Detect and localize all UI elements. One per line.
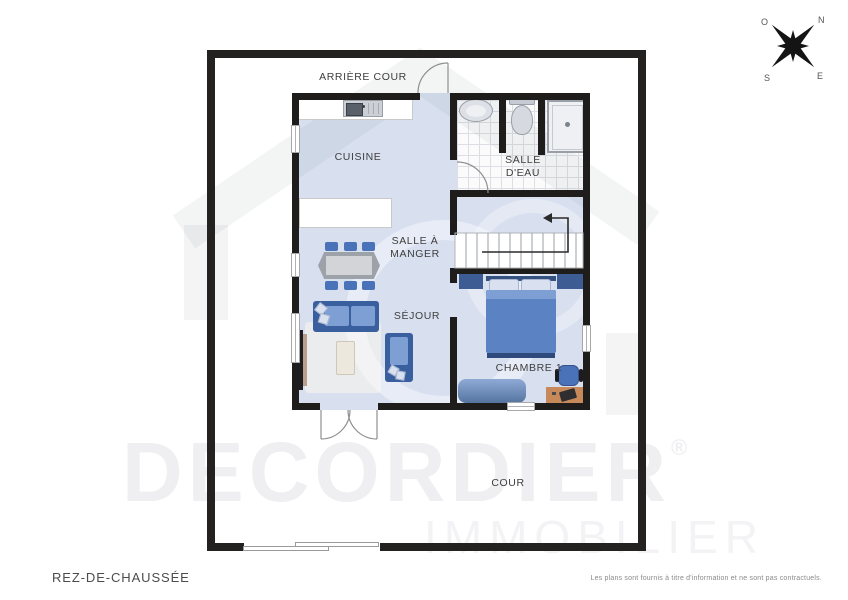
compass-label-north: N bbox=[818, 15, 825, 25]
label-salle-a-manger-line2: MANGER bbox=[390, 248, 440, 261]
doors-and-stairs-layer bbox=[0, 0, 848, 600]
label-salle-a-manger: SALLE À MANGER bbox=[390, 235, 440, 260]
bathroom-door-arc bbox=[457, 162, 488, 193]
label-cour: COUR bbox=[491, 477, 524, 490]
stair-direction-arrow bbox=[482, 218, 568, 252]
label-salle-a-manger-line1: SALLE À bbox=[390, 235, 440, 248]
compass-label-east: E bbox=[817, 71, 823, 81]
compass-label-west: O bbox=[761, 17, 768, 27]
label-cuisine: CUISINE bbox=[335, 151, 382, 164]
stair-arrow-head bbox=[543, 213, 552, 223]
disclaimer-text: Les plans sont fournis à titre d'informa… bbox=[590, 575, 822, 582]
staircase bbox=[455, 213, 583, 268]
label-salle-deau: SALLE D'EAU bbox=[505, 154, 541, 179]
label-salle-deau-line1: SALLE bbox=[505, 154, 541, 167]
french-door-right-arc bbox=[348, 410, 377, 439]
floor-plan-page: DECORDIER® IMMOBILIER bbox=[0, 0, 848, 600]
label-salle-deau-line2: D'EAU bbox=[505, 167, 541, 180]
label-sejour: SÉJOUR bbox=[394, 310, 440, 323]
label-arriere-cour: ARRIÈRE COUR bbox=[319, 71, 407, 84]
floor-title: REZ-DE-CHAUSSÉE bbox=[52, 570, 190, 585]
entry-door-arc bbox=[418, 63, 448, 93]
compass-label-south: S bbox=[764, 73, 770, 83]
compass-rose: N O S E bbox=[748, 6, 838, 91]
french-door-left-arc bbox=[321, 410, 350, 439]
label-chambre-1: CHAMBRE 1 bbox=[496, 362, 563, 375]
